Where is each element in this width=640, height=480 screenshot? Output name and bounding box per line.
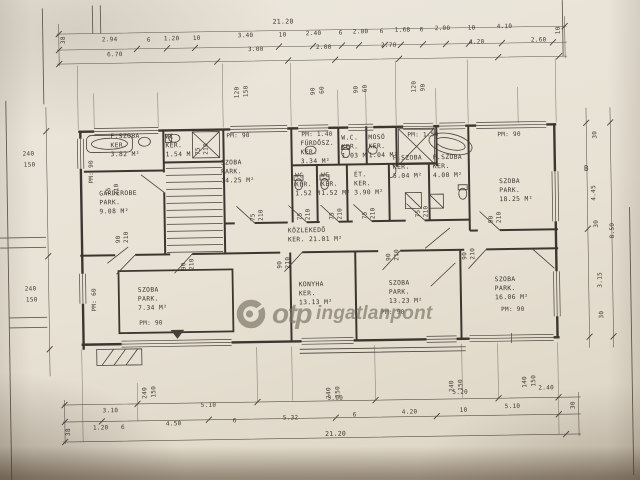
dim-label: 150 — [243, 85, 250, 97]
room-garderobe: GARDEROBEPARK.9.08 M² — [99, 189, 137, 217]
dim-label: 6 — [353, 411, 357, 418]
room-szoba-734: SZOBAPARK.7.34 M² — [138, 285, 168, 313]
room-wc-103: W.C.KER.1.03 M — [341, 133, 367, 161]
dim-label: 4.50 — [166, 420, 182, 427]
dim-label: 6 — [121, 424, 125, 431]
door-size-label: 210 — [188, 258, 195, 270]
watermark-suffix: ingatlanpont — [316, 303, 432, 325]
dim-label: 4.45 — [590, 185, 597, 201]
dim-label: 140 — [521, 376, 528, 388]
door-size-label: 75 — [329, 212, 336, 220]
dim-label: 21.20 — [273, 17, 294, 25]
dim-label: 5.32 — [283, 414, 299, 421]
dim-label: 90 — [420, 83, 427, 91]
room-wc-152b: WCKER.1.52 M² — [321, 171, 351, 199]
dim-label: 10 — [193, 35, 201, 42]
dim-label: 1.68 — [395, 27, 411, 34]
dim-label: 150 — [26, 296, 38, 303]
watermark: otp ingatlanpont — [234, 297, 432, 331]
dim-label: 8.50 — [609, 223, 616, 239]
dim-label: 38 — [60, 36, 67, 44]
dim-label: 90 — [310, 87, 317, 95]
dim-label: 3.15 — [597, 272, 604, 288]
dim-label: 60 — [319, 86, 326, 94]
floor-plan-sheet: 21.20382.9461.20103.40102.4062.0061.6862… — [0, 0, 640, 480]
door-size-label: 90 — [276, 261, 283, 269]
door-size-label: 210 — [305, 208, 312, 220]
dim-label: 240 — [23, 150, 35, 157]
pm-label: PM: 90 — [501, 306, 525, 313]
door-size-label: 90 — [385, 253, 392, 261]
dim-label: 3.40 — [238, 32, 254, 39]
door-size-label: 210 — [123, 231, 130, 243]
dim-label: 150 — [24, 161, 36, 168]
dim-label: 2.40 — [538, 384, 554, 391]
dim-label: 6 — [380, 28, 384, 35]
dim-label: 2.40 — [306, 30, 322, 37]
dim-label: 2.00 — [435, 25, 451, 32]
dim-label: 4.10 — [497, 23, 513, 30]
room-et-390: ÉT.KER.3.90 M² — [354, 170, 384, 198]
dim-label: 10 — [468, 25, 476, 32]
pm-label: PM: 90 — [226, 132, 250, 139]
door-size-label: 75 — [362, 211, 369, 219]
door-size-label: 210 — [258, 209, 265, 221]
pm-label: PM: 60 — [91, 288, 98, 312]
door-size-label: 210 — [469, 248, 476, 260]
dim-label: 5.00 — [327, 395, 343, 402]
dim-label: 6.70 — [107, 51, 123, 58]
dim-label: 3.00 — [248, 46, 264, 53]
dim-label: 1.20 — [93, 424, 109, 431]
pm-label: PM: 90 — [497, 131, 521, 138]
otp-logo-icon — [234, 297, 268, 331]
door-size-label: 210 — [284, 257, 291, 269]
door-size-label: 210 — [369, 207, 376, 219]
door-size-label: 90 — [461, 252, 468, 260]
pm-label: PM: 1.40 — [301, 131, 332, 138]
room-wc-152a: WCKER.1.52 M — [295, 171, 321, 199]
dim-label: 6 — [420, 26, 424, 33]
room-kozlekedo: KÖZLEKEDŐKER. 21.01 M² — [288, 226, 343, 245]
dim-label: 2.70 — [381, 42, 397, 49]
pm-label: PM: 1.50 — [407, 131, 438, 138]
door-size-label: 210 — [393, 249, 400, 261]
pm-label: PM: 90 — [88, 160, 95, 184]
dim-label: 6 — [339, 30, 343, 37]
dim-label: 2.00 — [353, 28, 369, 35]
door-size-label: 75 — [195, 147, 202, 155]
dim-label: 38 — [65, 428, 72, 436]
dim-label: 90 — [353, 86, 360, 94]
plan-labels-layer: 21.20382.9461.20103.40102.4062.0061.6862… — [0, 0, 640, 480]
floor-plan-photo: 21.20382.9461.20103.40102.4062.0061.6862… — [0, 0, 640, 480]
dim-label: 2.94 — [102, 36, 118, 43]
dim-label: 2.60 — [531, 36, 547, 43]
dim-label: 1.20 — [164, 35, 180, 42]
dim-label: 30 — [593, 220, 600, 228]
dim-label: 30 — [598, 311, 605, 319]
dim-label: 60 — [362, 84, 369, 92]
dim-label: 10 — [460, 407, 468, 414]
room-fszoba-382: F.SZOBAKER.3.82 M² — [110, 132, 140, 160]
room-szoba-1606: SZOBAPARK.16.06 M² — [495, 275, 529, 303]
dim-label: 30 — [570, 401, 577, 409]
door-size-label: 210 — [496, 211, 503, 223]
room-fszoba-400: F.SZOBAKER.4.00 M² — [433, 153, 463, 181]
door-size-label: 75 — [250, 213, 257, 221]
dim-label: B — [584, 164, 589, 173]
door-size-label: 90 — [115, 235, 122, 243]
room-fszoba-504: F.SZOBAKER.5.04 M² — [393, 153, 423, 181]
dim-label: 4.20 — [402, 408, 418, 415]
dim-label: 10 — [555, 26, 562, 34]
pm-label: PM: 90 — [139, 319, 163, 326]
dim-label: 5.10 — [201, 402, 217, 409]
room-szoba-1825: SZOBAPARK.18.25 M² — [499, 177, 533, 205]
dim-label: 30 — [591, 131, 598, 139]
door-size-label: 210 — [422, 206, 429, 218]
dim-label: 120 — [234, 86, 241, 98]
dim-label: 240 — [25, 285, 37, 292]
dim-label: 10 — [279, 31, 287, 38]
dim-label: 5.10 — [505, 403, 521, 410]
door-size-label: 210 — [336, 208, 343, 220]
dim-label: 150 — [530, 375, 537, 387]
door-size-label: 75 — [415, 210, 422, 218]
door-size-label: 90 — [488, 215, 495, 223]
dim-label: 5.20 — [452, 389, 468, 396]
dim-label: 6 — [233, 417, 237, 424]
dim-label: 6 — [147, 37, 151, 44]
door-size-label: 90 — [180, 262, 187, 270]
room-furdosz-334: FÜRDŐSZ.KER.3.34 M² — [300, 139, 334, 167]
door-size-label: 75 — [297, 212, 304, 220]
dim-label: 4.20 — [469, 38, 485, 45]
dim-label: 240 — [141, 387, 148, 399]
room-szoba-1425: SZOBAPARK.14.25 M² — [221, 158, 255, 186]
dim-label: 2.00 — [316, 44, 332, 51]
door-size-label: 210 — [202, 143, 209, 155]
dim-label: 3.10 — [103, 407, 119, 414]
dim-label: 21.20 — [325, 430, 346, 438]
room-wc-154: WCKER.1.54 M — [165, 132, 191, 160]
dim-label: 150 — [150, 386, 157, 398]
dim-label: 120 — [411, 81, 418, 93]
watermark-brand: otp — [272, 298, 311, 330]
